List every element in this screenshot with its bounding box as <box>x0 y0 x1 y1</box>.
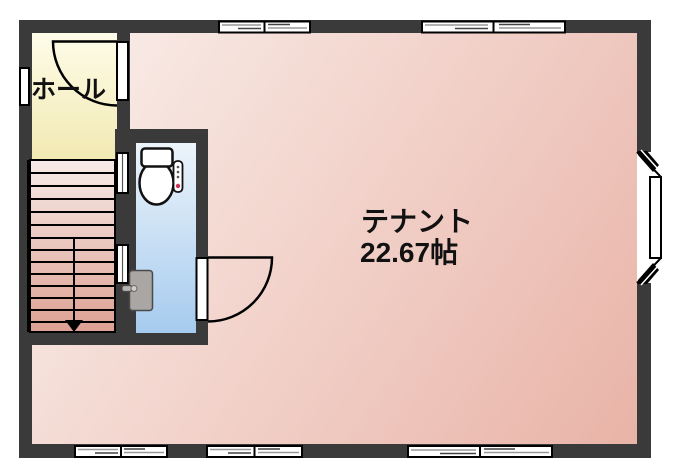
floorplan-canvas: ホール テナント 22.67帖 <box>0 0 678 476</box>
stair-tread <box>30 225 115 238</box>
stair-tread <box>74 250 115 262</box>
wall-under-stairs <box>19 333 115 345</box>
stair-tread <box>30 250 74 262</box>
stair-tread <box>30 238 74 250</box>
stair-tread <box>74 238 115 250</box>
toilet-door-opening <box>197 258 208 320</box>
stair-tread <box>30 199 115 212</box>
wall-right-lower <box>637 283 651 458</box>
stair-tread <box>30 186 115 199</box>
toilet-bowl <box>140 162 174 205</box>
stair-tread <box>74 262 115 274</box>
toilet-tank <box>142 149 173 167</box>
wall-right-upper <box>637 20 651 152</box>
tenant-label: テナント <box>361 206 473 237</box>
hall-label: ホール <box>31 76 106 104</box>
toilet-panel-alert-dot <box>176 184 180 188</box>
stair-tread <box>30 160 115 173</box>
stair-tread <box>74 286 115 298</box>
stair-tread <box>30 212 115 225</box>
stair-tread <box>30 262 74 274</box>
hall-door-opening <box>117 42 128 100</box>
stair-tread <box>30 274 74 286</box>
stair-tread <box>74 274 115 286</box>
left-wall-window <box>20 68 29 105</box>
stair-tread <box>30 298 74 310</box>
stair-tread <box>30 286 74 298</box>
stair-tread <box>74 298 115 310</box>
stair-tread <box>30 173 115 186</box>
bay-window-glass <box>650 177 661 258</box>
tenant-size-label: 22.67帖 <box>360 237 458 268</box>
staircase <box>27 160 115 332</box>
